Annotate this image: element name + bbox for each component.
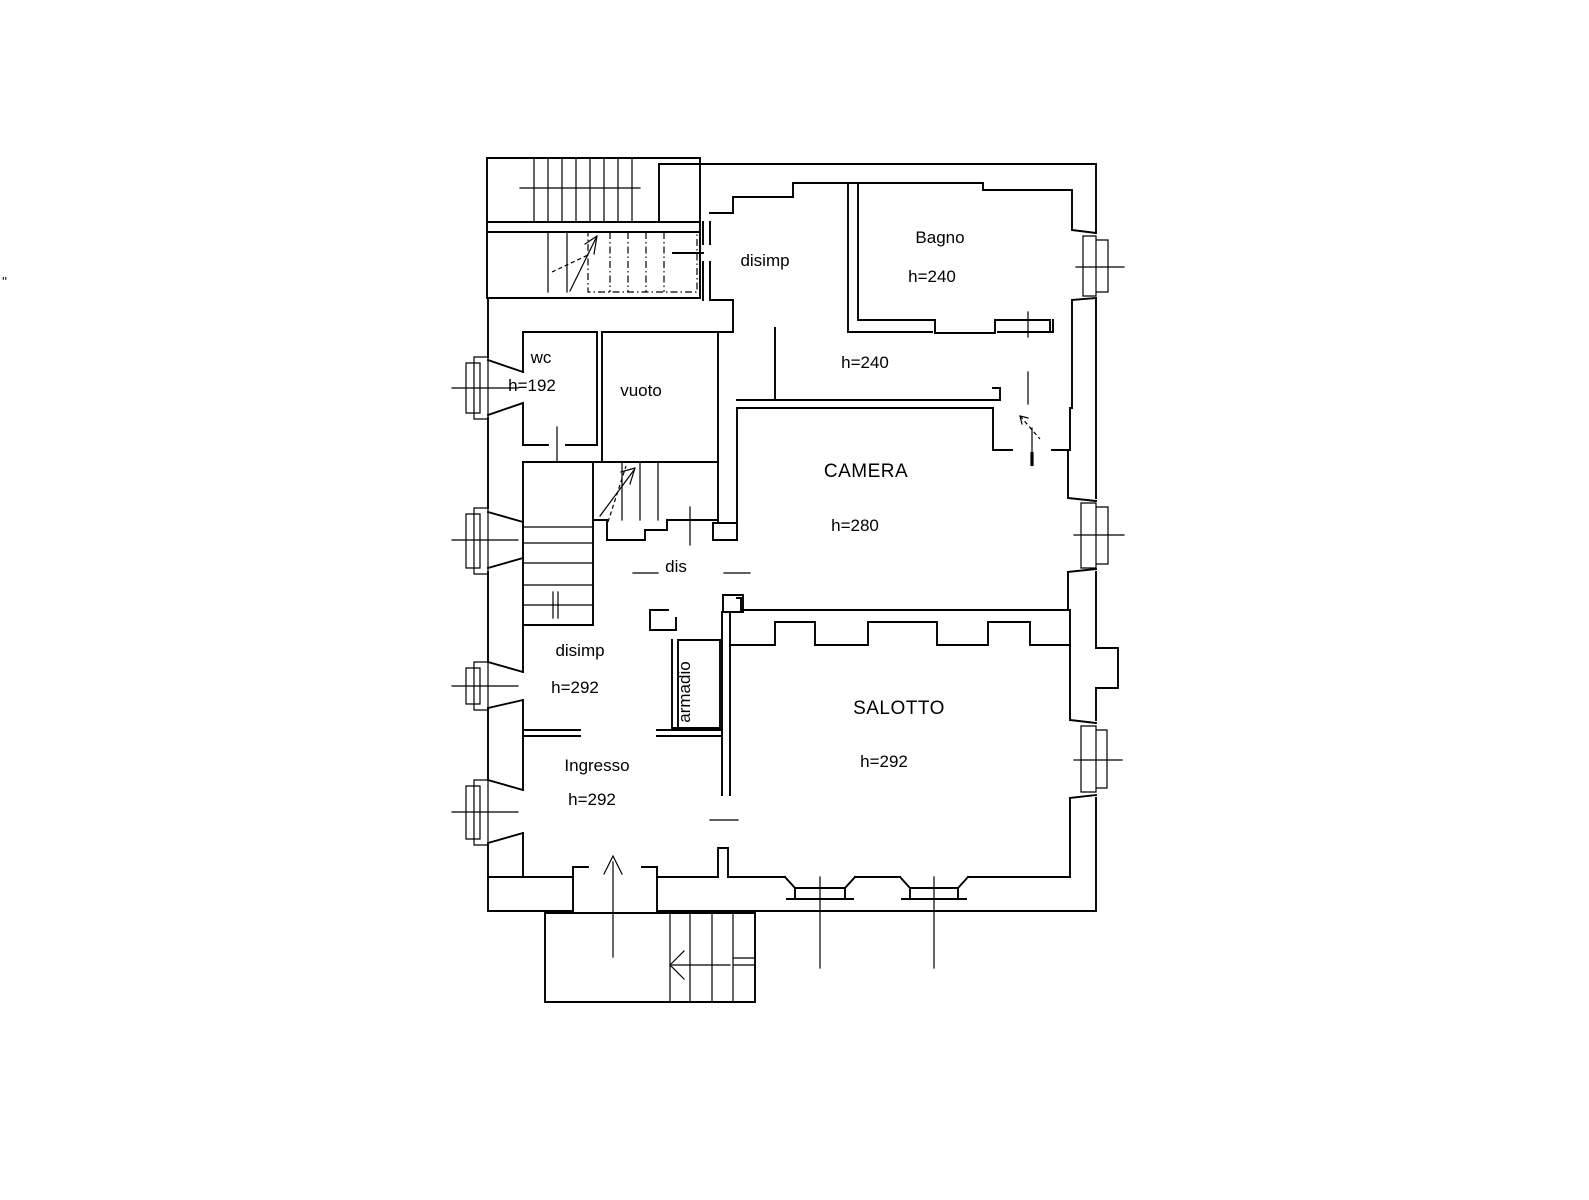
- room-label-disimp-top: disimp: [740, 251, 789, 270]
- room-height-disimp-left: h=292: [551, 678, 599, 697]
- room-label-disimp-left: disimp: [555, 641, 604, 660]
- room-label-salotto: SALOTTO: [853, 698, 945, 719]
- room-label-dis: dis: [665, 557, 687, 576]
- left-edge-mark: '': [2, 274, 7, 289]
- floor-plan-drawing: disimp h=240 Bagno h=240 wc h=192 vuoto …: [0, 0, 1589, 1200]
- room-height-camera: h=280: [831, 516, 879, 535]
- right-windows: [820, 236, 1124, 968]
- room-label-vuoto: vuoto: [620, 381, 662, 400]
- room-height-disimp-top: h=240: [841, 353, 889, 372]
- floor-plan-canvas: disimp h=240 Bagno h=240 wc h=192 vuoto …: [0, 0, 1589, 1200]
- room-label-camera: CAMERA: [824, 461, 908, 482]
- room-label-wc: wc: [530, 348, 552, 367]
- door-marks: [552, 236, 1040, 979]
- left-windows: [452, 357, 518, 845]
- room-height-salotto: h=292: [860, 752, 908, 771]
- room-label-ingresso: Ingresso: [564, 756, 629, 775]
- room-label-bagno: Bagno: [915, 228, 964, 247]
- room-label-armadio: armadio: [675, 661, 694, 722]
- room-height-wc: h=192: [508, 376, 556, 395]
- labels-layer: disimp h=240 Bagno h=240 wc h=192 vuoto …: [2, 228, 965, 809]
- room-height-ingresso: h=292: [568, 790, 616, 809]
- room-height-bagno: h=240: [908, 267, 956, 286]
- walls-layer: [487, 158, 1118, 1002]
